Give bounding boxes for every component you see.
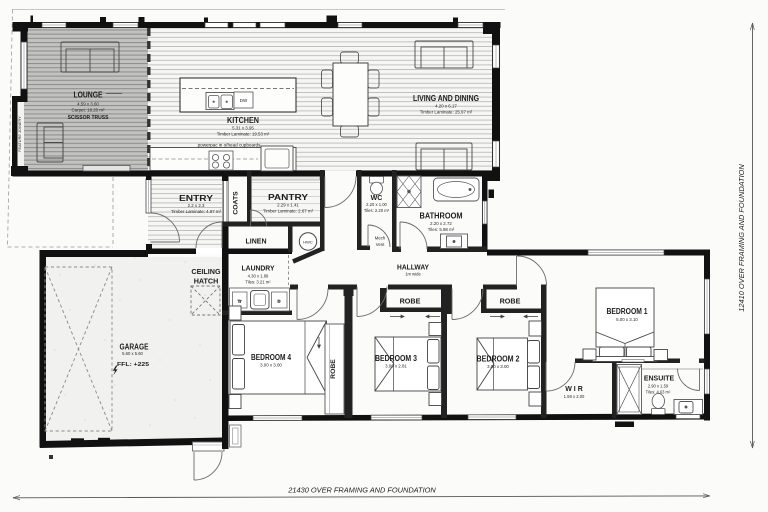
svg-text:KITCHEN: KITCHEN	[227, 116, 259, 125]
svg-text:FEATURE JOINERY: FEATURE JOINERY	[17, 116, 22, 152]
svg-text:LOUNGE: LOUNGE	[74, 91, 103, 100]
svg-text:LIVING AND DINING: LIVING AND DINING	[413, 94, 479, 103]
svg-text:3.00 x 3.00: 3.00 x 3.00	[487, 364, 509, 369]
svg-text:CEILING: CEILING	[191, 267, 221, 276]
svg-text:BEDROOM 1: BEDROOM 1	[607, 307, 648, 316]
svg-text:BEDROOM 3: BEDROOM 3	[375, 354, 417, 363]
svg-text:BATHROOM: BATHROOM	[420, 212, 463, 221]
svg-text:2.20 x 2.72: 2.20 x 2.72	[430, 221, 452, 226]
svg-text:Vent: Vent	[376, 242, 385, 247]
svg-text:BEDROOM 4: BEDROOM 4	[251, 353, 291, 362]
svg-text:5.00 x 3.10: 5.00 x 3.10	[616, 317, 638, 322]
svg-text:W I R: W I R	[565, 386, 583, 393]
svg-text:Carpet: 18.20 m²: Carpet: 18.20 m²	[72, 108, 105, 113]
svg-text:HALLWAY: HALLWAY	[397, 263, 429, 272]
svg-text:5.60 x 5.60: 5.60 x 5.60	[122, 351, 143, 356]
svg-text:3.00 x 2.81: 3.00 x 2.81	[385, 364, 407, 369]
svg-text:Timber Laminate: 25.97 m²: Timber Laminate: 25.97 m²	[420, 110, 473, 115]
svg-text:2.20 x 1.00: 2.20 x 1.00	[366, 202, 387, 207]
svg-text:2.29 x 1.41: 2.29 x 1.41	[277, 203, 299, 208]
svg-text:D: D	[278, 300, 281, 304]
svg-text:Timber Laminate: 2.67 m²: Timber Laminate: 2.67 m²	[263, 209, 314, 214]
svg-text:HWC: HWC	[303, 240, 313, 245]
svg-text:2.2 x 2.3: 2.2 x 2.3	[188, 203, 205, 208]
svg-text:Mech: Mech	[375, 236, 386, 241]
svg-text:LAUNDRY: LAUNDRY	[242, 264, 275, 273]
svg-text:2.90 x 1.59: 2.90 x 1.59	[648, 384, 669, 389]
svg-text:5.31 x 3.95: 5.31 x 3.95	[232, 126, 254, 131]
svg-text:powerpac in o/head cupboards: powerpac in o/head cupboards	[198, 143, 262, 148]
svg-text:3.00 x 3.00: 3.00 x 3.00	[260, 363, 282, 368]
svg-text:4.59 x 3.60: 4.59 x 3.60	[77, 102, 99, 107]
svg-text:Tiles: 3.21 m²: Tiles: 3.21 m²	[245, 280, 271, 285]
svg-text:Tiles: 2.20 m²: Tiles: 2.20 m²	[364, 208, 390, 213]
svg-text:COATS: COATS	[233, 191, 240, 215]
svg-text:ROBE: ROBE	[500, 297, 521, 306]
svg-text:21430 OVER FRAMING AND FOUNDAT: 21430 OVER FRAMING AND FOUNDATION	[287, 486, 436, 495]
svg-text:1m wide: 1m wide	[405, 272, 421, 277]
svg-text:WC: WC	[371, 195, 383, 202]
svg-text:4.20 x 6.17: 4.20 x 6.17	[435, 104, 457, 109]
svg-text:DW: DW	[240, 98, 248, 103]
svg-text:BEDROOM 2: BEDROOM 2	[477, 355, 520, 364]
svg-text:SCISSOR TRUSS: SCISSOR TRUSS	[68, 115, 110, 121]
svg-text:LINEN: LINEN	[246, 239, 267, 246]
svg-text:FFL: +225: FFL: +225	[117, 362, 150, 368]
svg-text:HATCH: HATCH	[194, 277, 219, 286]
svg-text:1.59 x 2.00: 1.59 x 2.00	[564, 394, 585, 399]
svg-text:ROBE: ROBE	[400, 297, 421, 306]
svg-text:ENTRY: ENTRY	[179, 194, 214, 203]
svg-text:Timber Laminate: 4.97 m²: Timber Laminate: 4.97 m²	[171, 209, 222, 214]
svg-text:Timber Laminate: 19.53 m²: Timber Laminate: 19.53 m²	[217, 132, 270, 137]
svg-text:12410 OVER FRAMING AND FOUNDAT: 12410 OVER FRAMING AND FOUNDATION	[737, 164, 746, 312]
svg-text:Tiles: 5.98 m²: Tiles: 5.98 m²	[428, 227, 455, 232]
svg-text:Tiles: 4.63 m²: Tiles: 4.63 m²	[646, 390, 671, 395]
svg-text:ENSUITE: ENSUITE	[644, 376, 675, 383]
svg-text:ROBE: ROBE	[330, 359, 337, 379]
svg-text:PANTRY: PANTRY	[268, 193, 309, 202]
svg-text:4.30 x 1.89: 4.30 x 1.89	[248, 274, 269, 279]
